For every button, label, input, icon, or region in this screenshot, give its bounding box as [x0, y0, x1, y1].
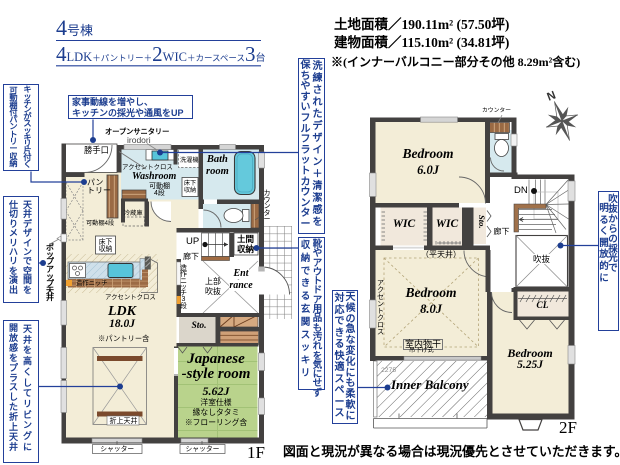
- svg-text:N: N: [546, 90, 558, 104]
